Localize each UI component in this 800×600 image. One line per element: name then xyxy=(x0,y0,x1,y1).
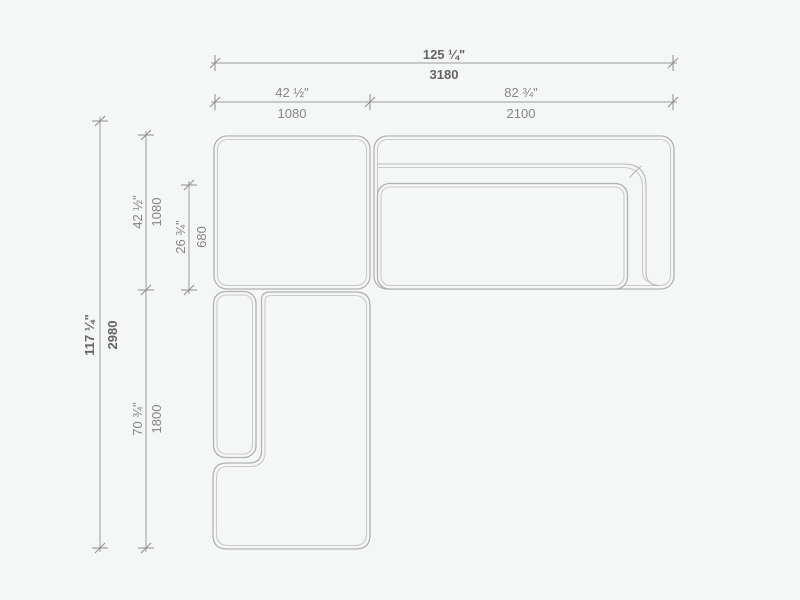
overall-depth-metric-label: 2980 xyxy=(105,321,120,350)
right-section-width-imperial-label: 82 ¾" xyxy=(504,85,538,100)
chaise-length-metric-label: 1800 xyxy=(149,405,164,434)
corner-module-outline xyxy=(214,136,370,289)
top-section-depth-metric-label: 1080 xyxy=(149,198,164,227)
left-section-width-imperial-label: 42 ½" xyxy=(275,85,309,100)
sofa-module xyxy=(374,136,674,289)
overall-width-imperial-label: 125 ¼" xyxy=(423,47,465,62)
chaise-armrest-outline xyxy=(214,292,257,458)
dimension-drawing-stage: 125 ¼" 3180 42 ½" 1080 82 ¾" 2100 117 ¼"… xyxy=(0,0,800,600)
left-section-width-metric-label: 1080 xyxy=(278,106,307,121)
sofa-dimension-drawing: 125 ¼" 3180 42 ½" 1080 82 ¾" 2100 117 ¼"… xyxy=(0,0,800,600)
overall-depth-imperial-label: 117 ¼" xyxy=(82,314,97,356)
dimension-lines-group: 125 ¼" 3180 42 ½" 1080 82 ¾" 2100 117 ¼"… xyxy=(82,47,678,553)
furniture-group xyxy=(213,136,674,549)
overall-width-dimension: 125 ¼" 3180 xyxy=(210,47,678,82)
corner-module xyxy=(214,136,370,289)
chaise-length-imperial-label: 70 ¾" xyxy=(130,402,145,436)
sofa-seat-cushion-outline xyxy=(378,184,628,290)
overall-width-metric-label: 3180 xyxy=(430,67,459,82)
seat-depth-imperial-label: 26 ¾" xyxy=(173,220,188,254)
section-width-dimension: 42 ½" 1080 82 ¾" 2100 xyxy=(210,85,678,121)
seat-depth-dimension: 26 ¾" 680 xyxy=(173,180,209,295)
chaise-module xyxy=(213,292,370,550)
side-depth-dimension: 42 ½" 1080 70 ¾" 1800 xyxy=(130,130,164,553)
right-section-width-metric-label: 2100 xyxy=(507,106,536,121)
top-section-depth-imperial-label: 42 ½" xyxy=(130,195,145,229)
seat-depth-metric-label: 680 xyxy=(194,226,209,248)
overall-depth-dimension: 117 ¼" 2980 xyxy=(82,116,120,553)
